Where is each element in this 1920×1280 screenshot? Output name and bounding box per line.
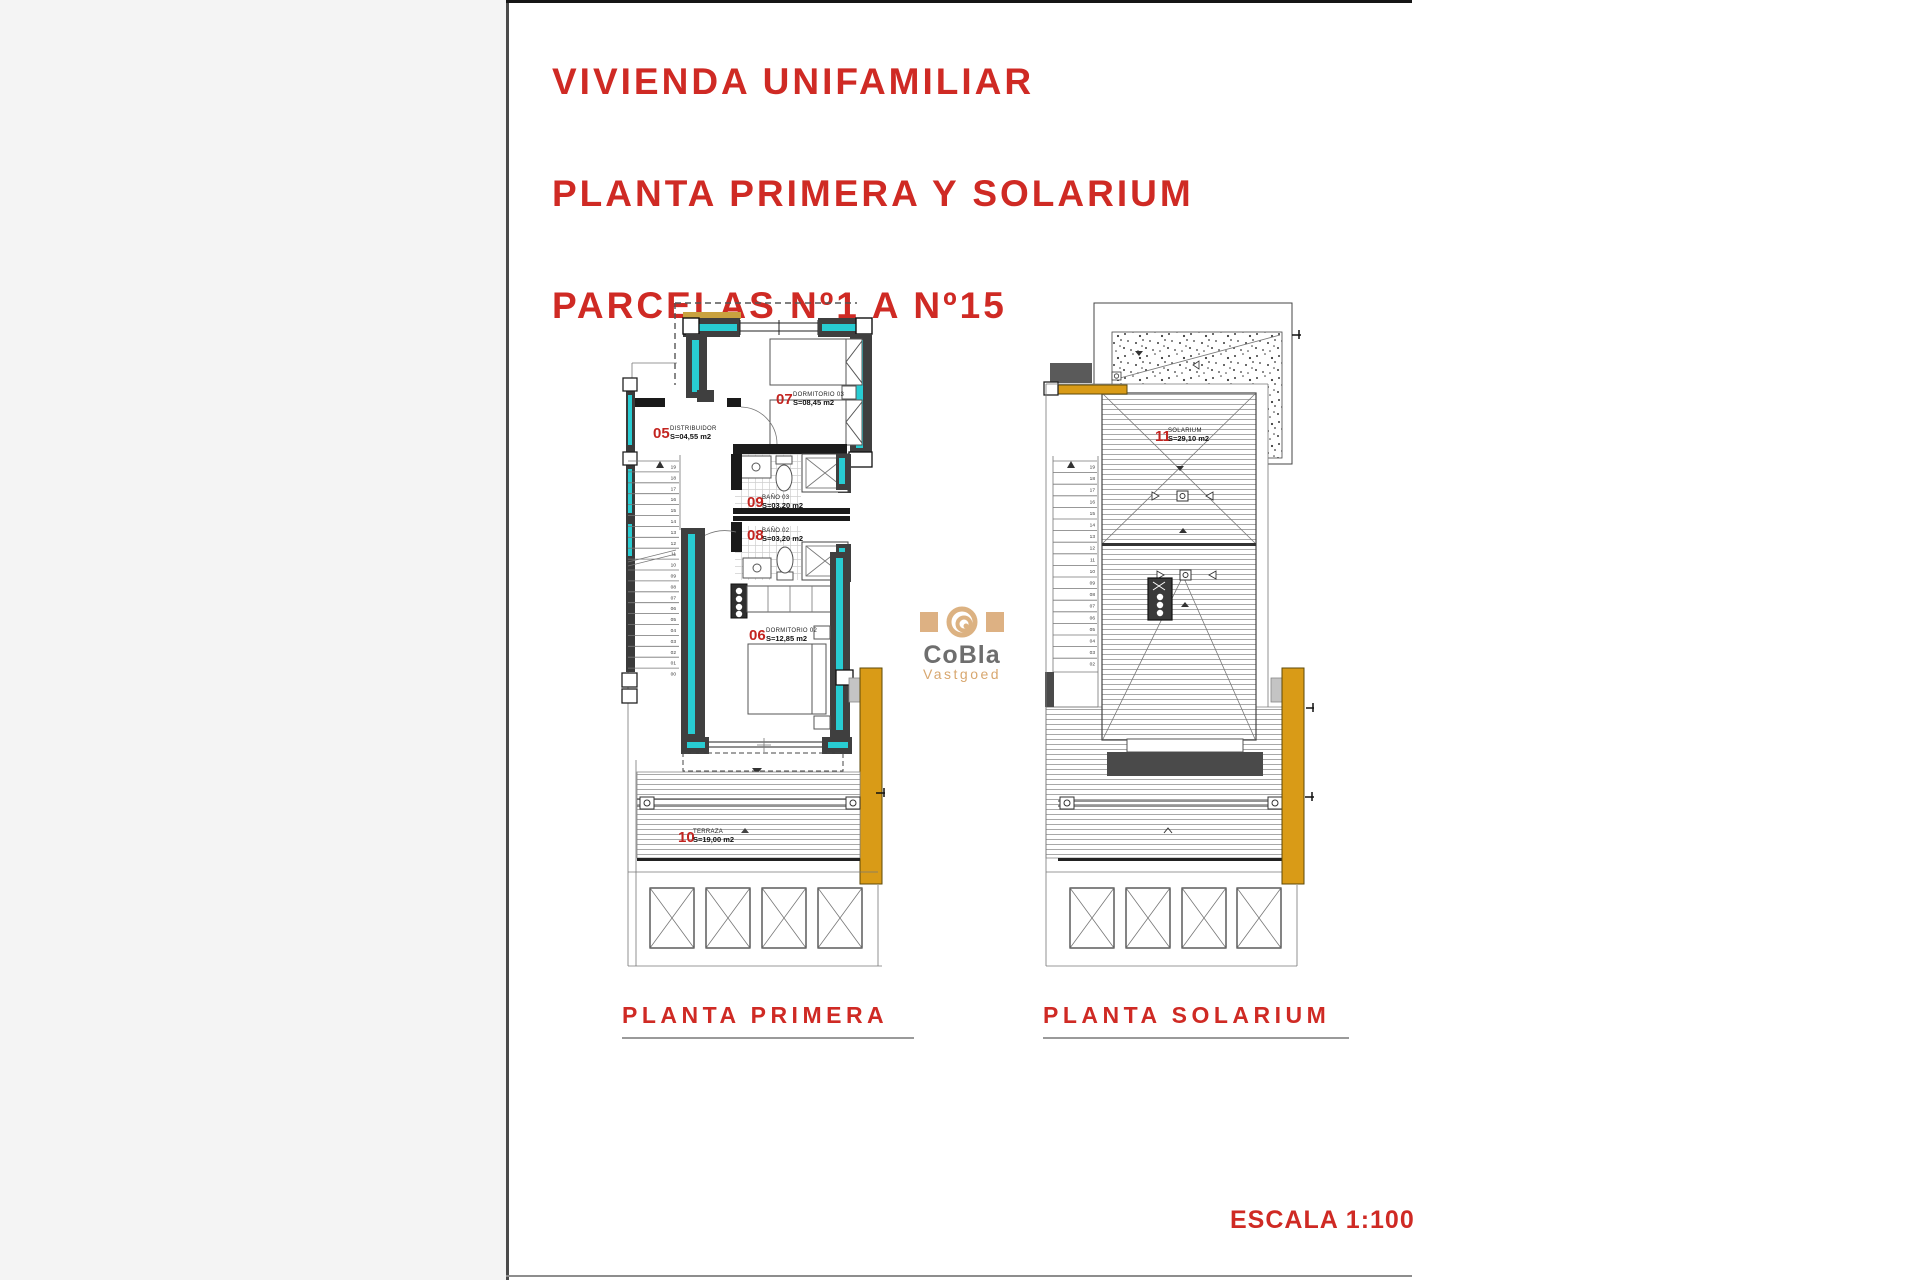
- svg-text:07: 07: [1090, 604, 1096, 610]
- svg-text:09: 09: [1090, 581, 1096, 587]
- svg-text:S=03,20 m2: S=03,20 m2: [762, 534, 803, 543]
- svg-text:S=03,20 m2: S=03,20 m2: [762, 501, 803, 510]
- svg-text:05: 05: [653, 425, 670, 442]
- svg-text:03: 03: [1090, 650, 1096, 656]
- svg-text:BAÑO 03: BAÑO 03: [762, 494, 790, 501]
- svg-text:03: 03: [671, 639, 677, 645]
- svg-text:16: 16: [1090, 499, 1096, 505]
- svg-text:15: 15: [671, 508, 677, 514]
- svg-text:02: 02: [1090, 662, 1096, 668]
- caption-planta-solarium: PLANTA SOLARIUM: [1043, 1002, 1330, 1029]
- room-label-06: 06 DORMITORIO 02 S=12,85 m2: [749, 627, 817, 644]
- svg-text:BAÑO 02: BAÑO 02: [762, 527, 790, 534]
- watermark-subtitle: Vastgoed: [916, 667, 1008, 682]
- svg-text:05: 05: [671, 617, 677, 623]
- scale-label: ESCALA 1:100: [1230, 1206, 1415, 1235]
- watermark-logo-icon: [916, 606, 1008, 638]
- svg-text:10: 10: [671, 563, 677, 569]
- room-label-05: 05 DISTRIBUIDOR S=04,55 m2: [653, 425, 717, 442]
- svg-text:05: 05: [1090, 627, 1096, 633]
- page-left-margin: [0, 0, 506, 1280]
- svg-text:13: 13: [1090, 534, 1096, 540]
- heading-line-2: PLANTA PRIMERA Y SOLARIUM: [552, 173, 1194, 214]
- watermark-brand: CoBla: [916, 643, 1008, 667]
- svg-text:04: 04: [1090, 639, 1096, 645]
- svg-text:07: 07: [776, 391, 793, 408]
- svg-text:S=04,55 m2: S=04,55 m2: [670, 432, 711, 441]
- svg-text:11: 11: [1090, 557, 1095, 563]
- svg-text:12: 12: [671, 541, 677, 547]
- caption-underline-primera: [622, 1037, 914, 1039]
- svg-text:16: 16: [671, 497, 677, 503]
- caption-underline-solarium: [1043, 1037, 1349, 1039]
- room-label-11: 11 SOLARIUM S=29,10 m2: [1155, 428, 1209, 445]
- svg-text:10: 10: [1090, 569, 1096, 575]
- svg-text:06: 06: [749, 627, 766, 644]
- svg-text:06: 06: [671, 606, 677, 612]
- svg-text:14: 14: [671, 519, 677, 525]
- svg-text:09: 09: [671, 574, 677, 580]
- svg-text:S=29,10 m2: S=29,10 m2: [1168, 434, 1209, 443]
- svg-text:S=12,85 m2: S=12,85 m2: [766, 634, 807, 643]
- svg-text:15: 15: [1090, 511, 1096, 517]
- svg-text:17: 17: [1090, 488, 1096, 494]
- svg-text:08: 08: [671, 584, 677, 590]
- svg-text:17: 17: [671, 486, 677, 492]
- svg-text:04: 04: [671, 628, 677, 634]
- sheet-border-top: [506, 0, 1412, 3]
- svg-text:S=19,00 m2: S=19,00 m2: [693, 835, 734, 844]
- svg-text:01: 01: [671, 661, 677, 667]
- watermark-logo: CoBla Vastgoed: [916, 606, 1008, 682]
- svg-text:14: 14: [1090, 523, 1096, 529]
- svg-text:00: 00: [671, 672, 677, 678]
- svg-text:13: 13: [671, 530, 677, 536]
- svg-text:12: 12: [1090, 546, 1096, 552]
- svg-text:07: 07: [671, 595, 677, 601]
- plan-primera: 1918171615141312111009080706050403020100…: [622, 303, 885, 966]
- svg-text:02: 02: [671, 650, 677, 656]
- svg-text:19: 19: [671, 465, 677, 471]
- svg-text:18: 18: [671, 475, 677, 481]
- caption-planta-primera: PLANTA PRIMERA: [622, 1002, 888, 1029]
- svg-text:06: 06: [1090, 615, 1096, 621]
- svg-text:18: 18: [1090, 476, 1096, 482]
- svg-text:19: 19: [1090, 465, 1096, 471]
- svg-text:S=08,45 m2: S=08,45 m2: [793, 398, 834, 407]
- sheet-border-bottom: [506, 1275, 1412, 1277]
- plan-solarium: 191817161514131211100908070605040302 11 …: [1044, 303, 1314, 966]
- sheet-border-left: [506, 0, 509, 1280]
- svg-text:08: 08: [1090, 592, 1096, 598]
- heading-line-1: VIVIENDA UNIFAMILIAR: [552, 61, 1034, 102]
